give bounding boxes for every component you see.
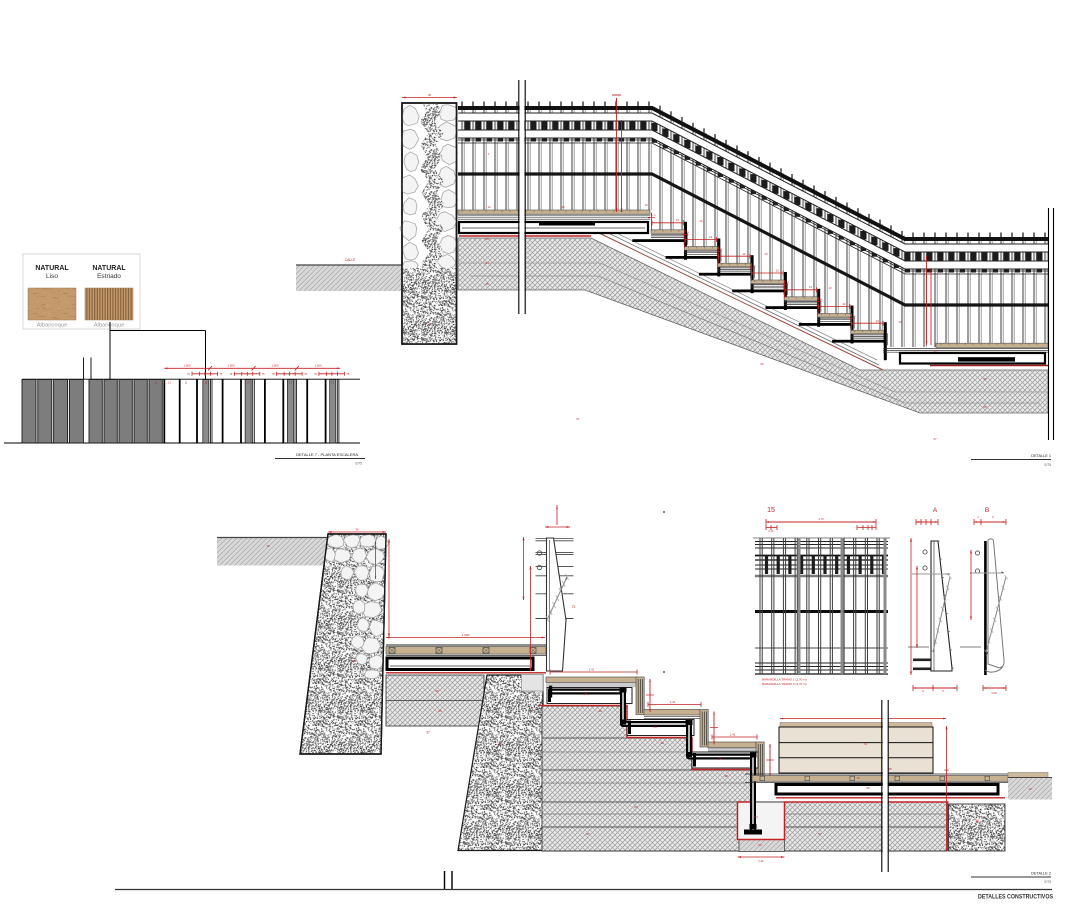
- svg-text:DETALLE 2: DETALLE 2: [1031, 872, 1051, 876]
- svg-text:1,500: 1,500: [228, 363, 235, 367]
- svg-text:07: 07: [576, 417, 580, 421]
- svg-text:36: 36: [428, 93, 432, 97]
- svg-text:13: 13: [898, 320, 902, 324]
- svg-text:1,41: 1,41: [758, 859, 764, 863]
- svg-text:07: 07: [933, 437, 937, 441]
- svg-text:04: 04: [718, 757, 722, 761]
- svg-text:DETALLES CONSTRUCTIVOS: DETALLES CONSTRUCTIVOS: [978, 894, 1053, 901]
- svg-text:13: 13: [764, 252, 768, 256]
- svg-text:Estriado: Estriado: [97, 273, 121, 280]
- svg-text:07: 07: [818, 832, 822, 836]
- svg-text:1.: 1.: [488, 152, 491, 156]
- svg-text:E/75: E/75: [355, 462, 362, 466]
- svg-text:04: 04: [754, 815, 758, 819]
- svg-text:04: 04: [653, 725, 657, 729]
- svg-text:74: 74: [863, 742, 867, 746]
- svg-text:06: 06: [866, 786, 870, 790]
- svg-text:16: 16: [1028, 787, 1032, 791]
- svg-text:16: 16: [266, 544, 270, 548]
- svg-text:13: 13: [876, 319, 880, 323]
- svg-text:BARANDILLA TRAMO 2 (2,70 m): BARANDILLA TRAMO 2 (2,70 m): [762, 682, 807, 686]
- svg-text:36: 36: [355, 528, 359, 532]
- svg-text:38: 38: [660, 741, 664, 745]
- svg-text:04: 04: [583, 692, 587, 696]
- svg-text:04: 04: [485, 261, 489, 265]
- svg-text:NATURAL: NATURAL: [92, 265, 126, 272]
- svg-text:1,500: 1,500: [315, 363, 322, 367]
- svg-text:DETALLE 7 - PLANTA ESCALERA: DETALLE 7 - PLANTA ESCALERA: [296, 452, 358, 457]
- svg-text:E/75: E/75: [1044, 880, 1051, 884]
- svg-text:13: 13: [842, 302, 846, 306]
- svg-text:12: 12: [487, 205, 491, 209]
- svg-text:38: 38: [352, 659, 356, 663]
- svg-text:Albaricoque: Albaricoque: [94, 323, 125, 329]
- svg-text:36: 36: [975, 819, 979, 823]
- svg-text:36: 36: [435, 689, 439, 693]
- svg-text:73: 73: [572, 605, 576, 609]
- svg-text:2,70: 2,70: [818, 517, 824, 521]
- svg-text:05: 05: [438, 709, 442, 713]
- svg-text:38: 38: [598, 709, 602, 713]
- svg-text:08: 08: [485, 237, 489, 241]
- svg-text:E/75: E/75: [1044, 463, 1051, 467]
- svg-text:13: 13: [828, 286, 832, 290]
- svg-text:13: 13: [699, 219, 703, 223]
- svg-text:09: 09: [758, 843, 762, 847]
- svg-text:38: 38: [498, 742, 502, 746]
- svg-text:13: 13: [809, 285, 813, 289]
- svg-text:40: 40: [428, 322, 432, 326]
- svg-text:13: 13: [933, 349, 937, 353]
- svg-text:DETALLE 1: DETALLE 1: [1031, 454, 1051, 458]
- svg-text:0,08: 0,08: [991, 691, 997, 695]
- svg-text:15: 15: [767, 507, 775, 514]
- svg-text:NATURAL: NATURAL: [35, 265, 69, 272]
- svg-text:06: 06: [983, 377, 987, 381]
- svg-text:BARANDILLA TRAMO 1 (2,70 m): BARANDILLA TRAMO 1 (2,70 m): [762, 678, 807, 682]
- svg-text:Liso: Liso: [46, 273, 58, 280]
- svg-text:13: 13: [856, 776, 860, 780]
- svg-text:07: 07: [586, 832, 590, 836]
- svg-text:1,500: 1,500: [462, 633, 470, 637]
- svg-text:13: 13: [561, 205, 565, 209]
- svg-text:03: 03: [634, 805, 638, 809]
- svg-text:1,500: 1,500: [272, 363, 279, 367]
- svg-text:13: 13: [644, 203, 648, 207]
- svg-text:1,41: 1,41: [670, 700, 676, 704]
- svg-text:Albaricoque: Albaricoque: [37, 323, 68, 329]
- svg-text:37: 37: [426, 731, 430, 735]
- svg-text:13: 13: [709, 235, 713, 239]
- svg-text:05: 05: [983, 405, 987, 409]
- svg-text:1,500: 1,500: [184, 363, 191, 367]
- svg-text:1,41: 1,41: [589, 668, 595, 672]
- svg-text:A: A: [933, 507, 938, 514]
- svg-text:0,10: 0,10: [769, 530, 774, 533]
- svg-text:B: B: [985, 507, 989, 514]
- svg-text:05: 05: [888, 767, 892, 771]
- svg-text:13: 13: [742, 252, 746, 256]
- svg-text:CALLE: CALLE: [345, 258, 356, 262]
- svg-text:1,41: 1,41: [730, 733, 736, 737]
- svg-text:13: 13: [676, 218, 680, 222]
- svg-text:38: 38: [724, 774, 728, 778]
- svg-text:09: 09: [760, 362, 764, 366]
- svg-text:05: 05: [485, 282, 489, 286]
- svg-text:13: 13: [776, 269, 780, 273]
